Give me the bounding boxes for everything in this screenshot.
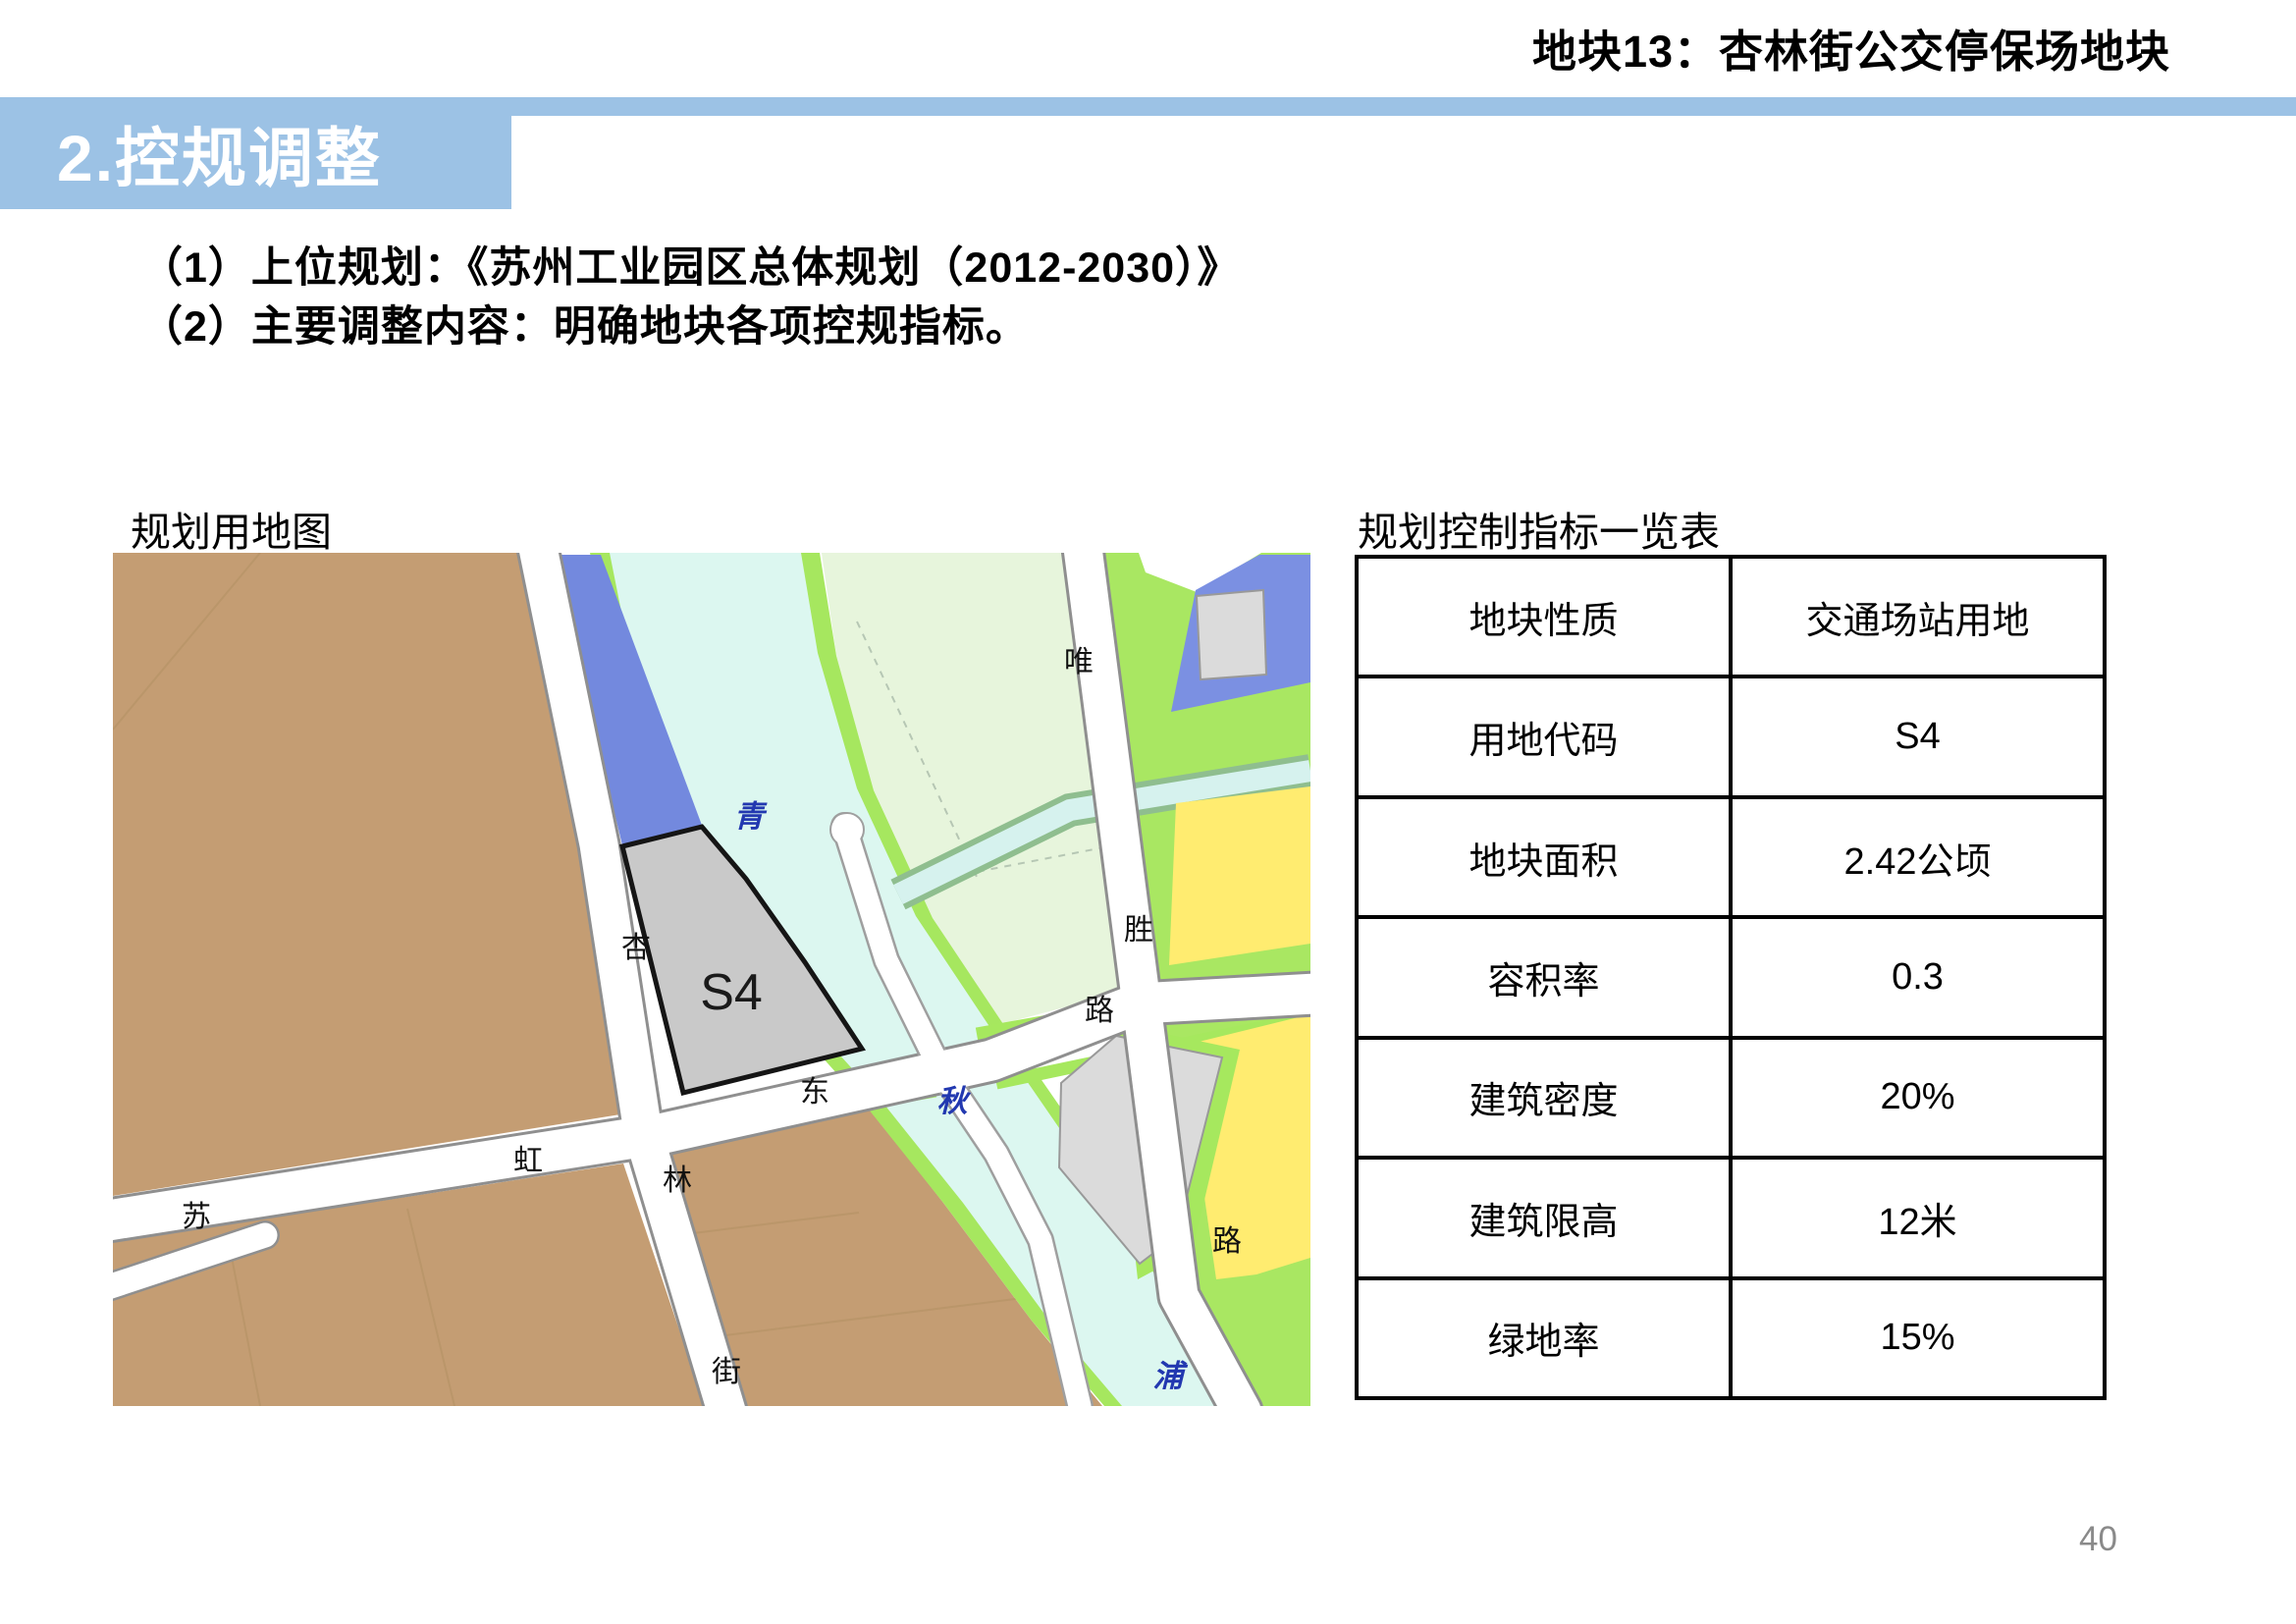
road-label-lu-south: 路: [1212, 1225, 1242, 1258]
section-title: 2.控规调整: [57, 106, 382, 200]
road-label-sheng: 胜: [1124, 914, 1153, 947]
indicator-value: 交通场站用地: [1731, 557, 2105, 677]
parcel-gray-notch: [1197, 590, 1266, 679]
indicator-value: 20%: [1731, 1038, 2105, 1158]
river-label-qing: 青: [734, 799, 769, 835]
page-number: 40: [2079, 1520, 2117, 1559]
indicator-name: 用地代码: [1357, 677, 1731, 796]
body-text: （1）上位规划：《苏州工业园区总体规划（2012-2030）》 （2）主要调整内…: [140, 239, 1241, 356]
river-label-pu: 浦: [1153, 1359, 1189, 1394]
indicator-name: 地块面积: [1357, 797, 1731, 917]
table-section-label: 规划控制指标一览表: [1358, 499, 1720, 558]
table-row: 地块面积 2.42公顷: [1357, 797, 2105, 917]
table-row: 地块性质 交通场站用地: [1357, 557, 2105, 677]
indicator-value: S4: [1731, 677, 2105, 796]
road-label-lin: 林: [663, 1164, 692, 1197]
indicator-name: 建筑密度: [1357, 1038, 1731, 1158]
parcel-yellow-north: [1169, 786, 1310, 965]
land-use-map-svg: S4 杏 林 街 苏 虹 东 路 唯 胜 路 青 秋 浦: [113, 553, 1310, 1406]
indicator-name: 绿地率: [1357, 1278, 1731, 1398]
road-label-hong: 虹: [513, 1145, 543, 1177]
indicator-name: 建筑限高: [1357, 1158, 1731, 1277]
indicator-value: 15%: [1731, 1278, 2105, 1398]
road-label-su: 苏: [182, 1201, 211, 1233]
body-line-2: （2）主要调整内容：明确地块各项控规指标。: [140, 298, 1241, 356]
indicator-name: 容积率: [1357, 917, 1731, 1037]
indicator-value: 12米: [1731, 1158, 2105, 1277]
planning-indicator-table: 地块性质 交通场站用地 用地代码 S4 地块面积 2.42公顷 容积率 0.3 …: [1355, 555, 2107, 1400]
indicator-value: 0.3: [1731, 917, 2105, 1037]
table-row: 建筑限高 12米: [1357, 1158, 2105, 1277]
body-line-1: （1）上位规划：《苏州工业园区总体规划（2012-2030）》: [140, 239, 1241, 298]
slide: 地块13：杏林街公交停保场地块 2.控规调整 （1）上位规划：《苏州工业园区总体…: [0, 0, 2296, 1624]
road-label-wei: 唯: [1064, 646, 1094, 678]
indicator-value: 2.42公顷: [1731, 797, 2105, 917]
table-row: 绿地率 15%: [1357, 1278, 2105, 1398]
road-label-lu-east: 路: [1085, 995, 1114, 1027]
road-label-jie: 街: [712, 1356, 741, 1388]
parcel-s4-label: S4: [700, 964, 763, 1021]
page-title: 地块13：杏林街公交停保场地块: [1532, 16, 2170, 80]
road-label-dong: 东: [800, 1076, 829, 1109]
land-use-map: S4 杏 林 街 苏 虹 东 路 唯 胜 路 青 秋 浦: [113, 553, 1310, 1406]
table-row: 建筑密度 20%: [1357, 1038, 2105, 1158]
table-row: 用地代码 S4: [1357, 677, 2105, 796]
map-section-label: 规划用地图: [131, 499, 332, 558]
road-label-xing: 杏: [621, 932, 651, 964]
indicator-name: 地块性质: [1357, 557, 1731, 677]
river-label-qiu: 秋: [937, 1084, 972, 1119]
table-row: 容积率 0.3: [1357, 917, 2105, 1037]
